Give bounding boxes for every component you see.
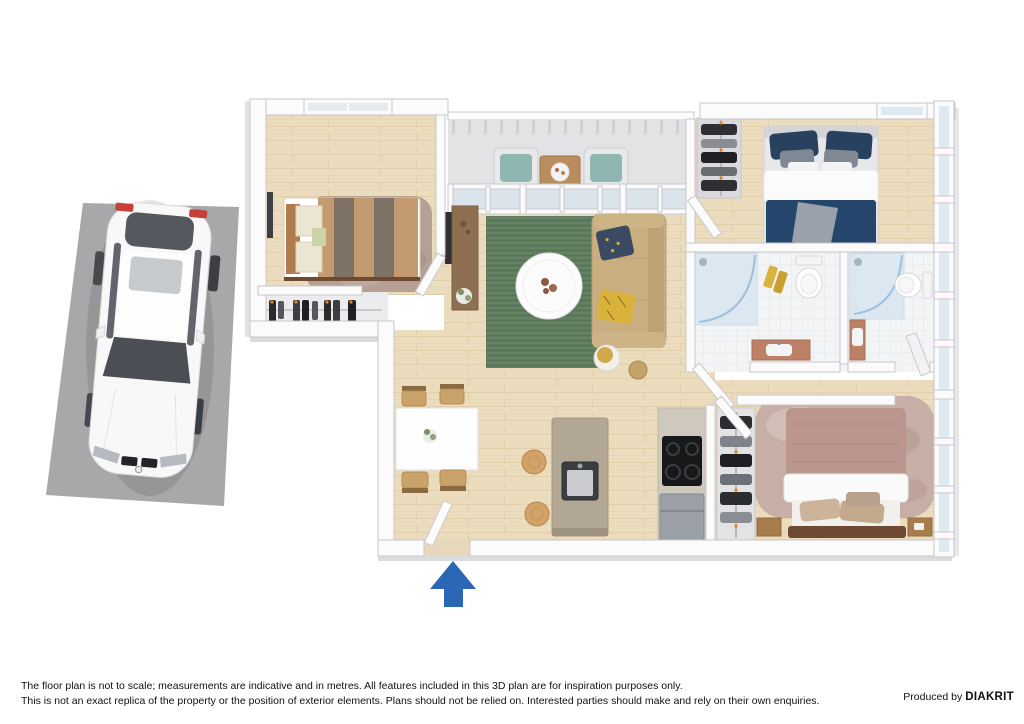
disclaimer-line-2: This is not an exact replica of the prop…: [21, 694, 819, 709]
shower-1: [695, 253, 757, 325]
floor-plan-render: [0, 0, 1024, 724]
pillow: [312, 228, 326, 246]
dining-chair: [440, 470, 466, 491]
tv-console: [452, 206, 478, 310]
window-bedroom-2: [877, 103, 927, 119]
floor-plan-page: The floor plan is not to scale; measurem…: [0, 0, 1024, 724]
bedroom-1: [267, 192, 432, 292]
produced-by: Produced byDIAKRIT: [903, 691, 1014, 703]
parking-space: [46, 199, 239, 506]
dining-table: [396, 408, 478, 470]
producer-brand: DIAKRIT: [965, 691, 1014, 703]
wardrobe-2: [697, 118, 741, 198]
bedroom-1-bed: [284, 198, 420, 281]
basket: [629, 361, 647, 379]
disclaimer-line-1: The floor plan is not to scale; measurem…: [21, 679, 819, 694]
entry-arrow-icon: [430, 561, 476, 607]
balcony-armchair: [494, 148, 538, 188]
bedside-table: [908, 518, 932, 536]
cooktop: [662, 436, 702, 486]
bar-stool: [522, 450, 546, 474]
wall-art: [267, 192, 273, 238]
bar-stool: [525, 502, 549, 526]
bed-frame: [788, 526, 906, 538]
fridge: [660, 494, 704, 540]
dining-chair: [402, 386, 426, 406]
dining-chair: [402, 472, 428, 493]
toilet-1: [796, 256, 822, 298]
white-throw: [764, 170, 878, 204]
coffee-table: [516, 253, 582, 319]
toilet-2: [895, 272, 932, 298]
pillow: [296, 242, 322, 272]
bedroom-3-bed: [784, 408, 908, 538]
pillow: [846, 492, 880, 506]
kitchen-sink: [562, 462, 598, 500]
vanity-1: [752, 340, 810, 360]
apartment: [245, 99, 959, 561]
vanity-2: [850, 320, 865, 360]
pouf: [594, 345, 620, 371]
disclaimer: The floor plan is not to scale; measurem…: [21, 679, 819, 708]
car-rear-window: [124, 212, 195, 252]
car-windshield: [103, 336, 194, 384]
pillow: [799, 498, 841, 522]
sofa-pillow-yellow: [596, 289, 637, 325]
window-bedroom-1: [304, 99, 392, 115]
shower-head: [854, 258, 862, 266]
car-grille: [141, 458, 158, 468]
dining-chair: [440, 384, 464, 404]
produced-by-prefix: Produced by: [903, 691, 962, 703]
bed-frame: [284, 277, 420, 281]
gray-blanket: [792, 202, 838, 248]
balcony-railing-top: [448, 112, 694, 120]
mauve-duvet: [786, 408, 906, 478]
bedside-table: [757, 518, 781, 536]
car-grille: [121, 456, 138, 466]
car-taillight: [189, 209, 208, 219]
window-wall-right: [934, 101, 954, 557]
sofa: [592, 214, 666, 348]
car-sunroof: [128, 256, 183, 294]
car-badge: [135, 466, 142, 473]
bedroom-2-bed: [764, 126, 878, 248]
table-plant: [423, 429, 437, 443]
balcony-armchair: [584, 148, 628, 188]
car-taillight: [115, 203, 134, 213]
balcony-glass-wall: [448, 184, 694, 214]
tv: [445, 212, 452, 264]
shower-head: [699, 258, 707, 266]
